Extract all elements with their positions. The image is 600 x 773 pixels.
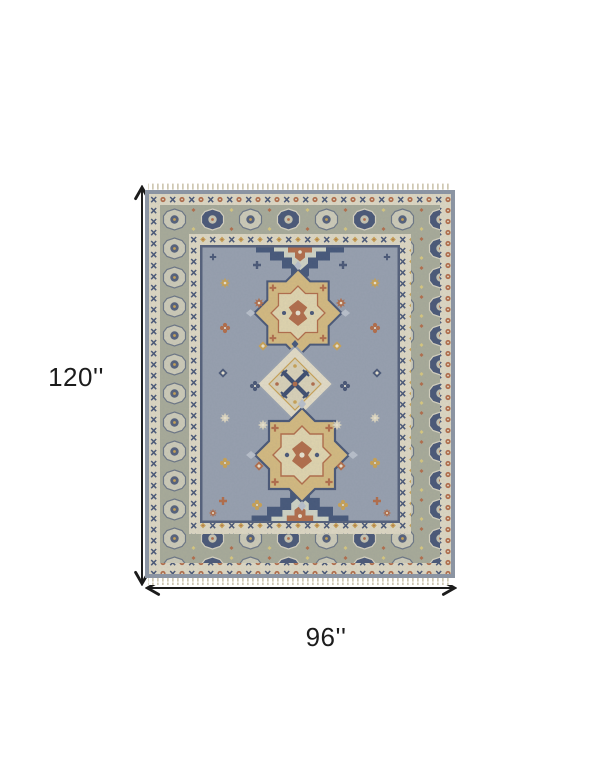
rug-fringe-top [148,183,452,190]
height-dimension-label: 120'' [30,362,122,392]
width-dimension-label: 96'' [280,622,372,652]
rug-fringe-bottom [148,578,452,585]
rug-weave-texture [145,190,455,578]
product-dimension-diagram: 120'' 96'' [0,0,600,773]
rug-product-image [145,183,455,585]
